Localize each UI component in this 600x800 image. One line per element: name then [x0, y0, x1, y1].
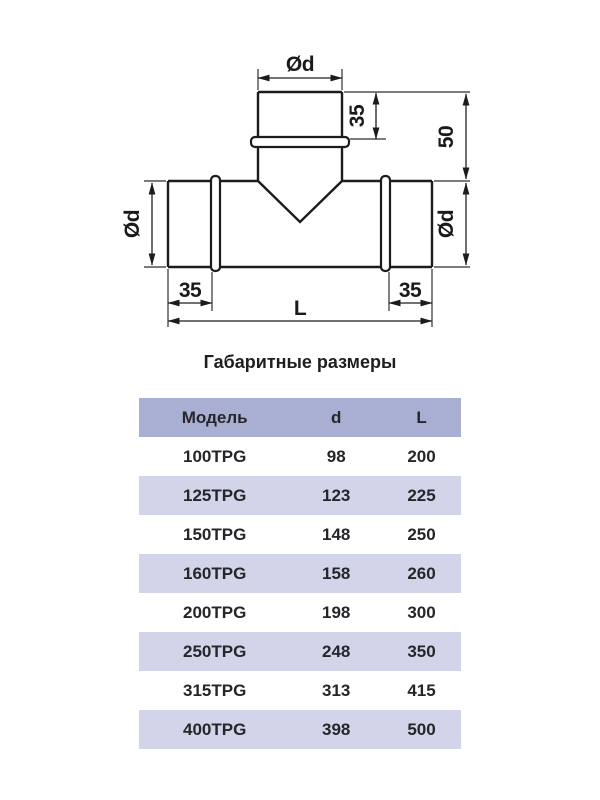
- cell-d: 198: [290, 593, 382, 632]
- cell-model: 100TPG: [139, 437, 290, 476]
- table-row: 150TPG 148 250: [139, 515, 461, 554]
- dim-label-left-diameter: Ød: [121, 210, 144, 238]
- table-row: 250TPG 248 350: [139, 632, 461, 671]
- dim-label-total-length: L: [294, 297, 307, 320]
- cell-l: 200: [382, 437, 461, 476]
- dim-label-branch-height: 50: [435, 126, 458, 148]
- cell-d: 398: [290, 710, 382, 749]
- cell-d: 148: [290, 515, 382, 554]
- column-header-l: L: [382, 398, 461, 437]
- table-row: 125TPG 123 225: [139, 476, 461, 515]
- right-bead: [381, 176, 390, 271]
- dimensions-table: Модель d L 100TPG 98 200 125TPG 123 225 …: [139, 398, 461, 749]
- dim-label-right-socket: 35: [399, 279, 422, 302]
- cell-model: 315TPG: [139, 671, 290, 710]
- cell-d: 313: [290, 671, 382, 710]
- cell-model: 250TPG: [139, 632, 290, 671]
- cell-l: 415: [382, 671, 461, 710]
- dim-label-top-diameter: Ød: [286, 53, 314, 76]
- table-row: 315TPG 313 415: [139, 671, 461, 710]
- table-row: 100TPG 98 200: [139, 437, 461, 476]
- tee-body-outline: [168, 92, 432, 271]
- cell-l: 225: [382, 476, 461, 515]
- tee-fitting-drawing: Ød 35 50 Ød Ød 35 35 L: [0, 0, 600, 345]
- table-title: Габаритные размеры: [0, 352, 600, 373]
- cell-model: 125TPG: [139, 476, 290, 515]
- cell-l: 500: [382, 710, 461, 749]
- cell-l: 250: [382, 515, 461, 554]
- cell-l: 260: [382, 554, 461, 593]
- cell-model: 160TPG: [139, 554, 290, 593]
- left-bead: [211, 176, 220, 271]
- table-header-row: Модель d L: [139, 398, 461, 437]
- cell-model: 150TPG: [139, 515, 290, 554]
- cell-model: 400TPG: [139, 710, 290, 749]
- table-row: 160TPG 158 260: [139, 554, 461, 593]
- column-header-d: d: [290, 398, 382, 437]
- cell-model: 200TPG: [139, 593, 290, 632]
- cell-d: 248: [290, 632, 382, 671]
- column-header-model: Модель: [139, 398, 290, 437]
- dim-label-branch-socket: 35: [346, 104, 369, 127]
- cell-d: 98: [290, 437, 382, 476]
- cell-l: 300: [382, 593, 461, 632]
- cell-l: 350: [382, 632, 461, 671]
- cell-d: 123: [290, 476, 382, 515]
- table-row: 200TPG 198 300: [139, 593, 461, 632]
- table-row: 400TPG 398 500: [139, 710, 461, 749]
- dim-label-left-socket: 35: [179, 279, 202, 302]
- dim-label-right-diameter: Ød: [435, 210, 458, 238]
- branch-bead: [251, 137, 349, 147]
- cell-d: 158: [290, 554, 382, 593]
